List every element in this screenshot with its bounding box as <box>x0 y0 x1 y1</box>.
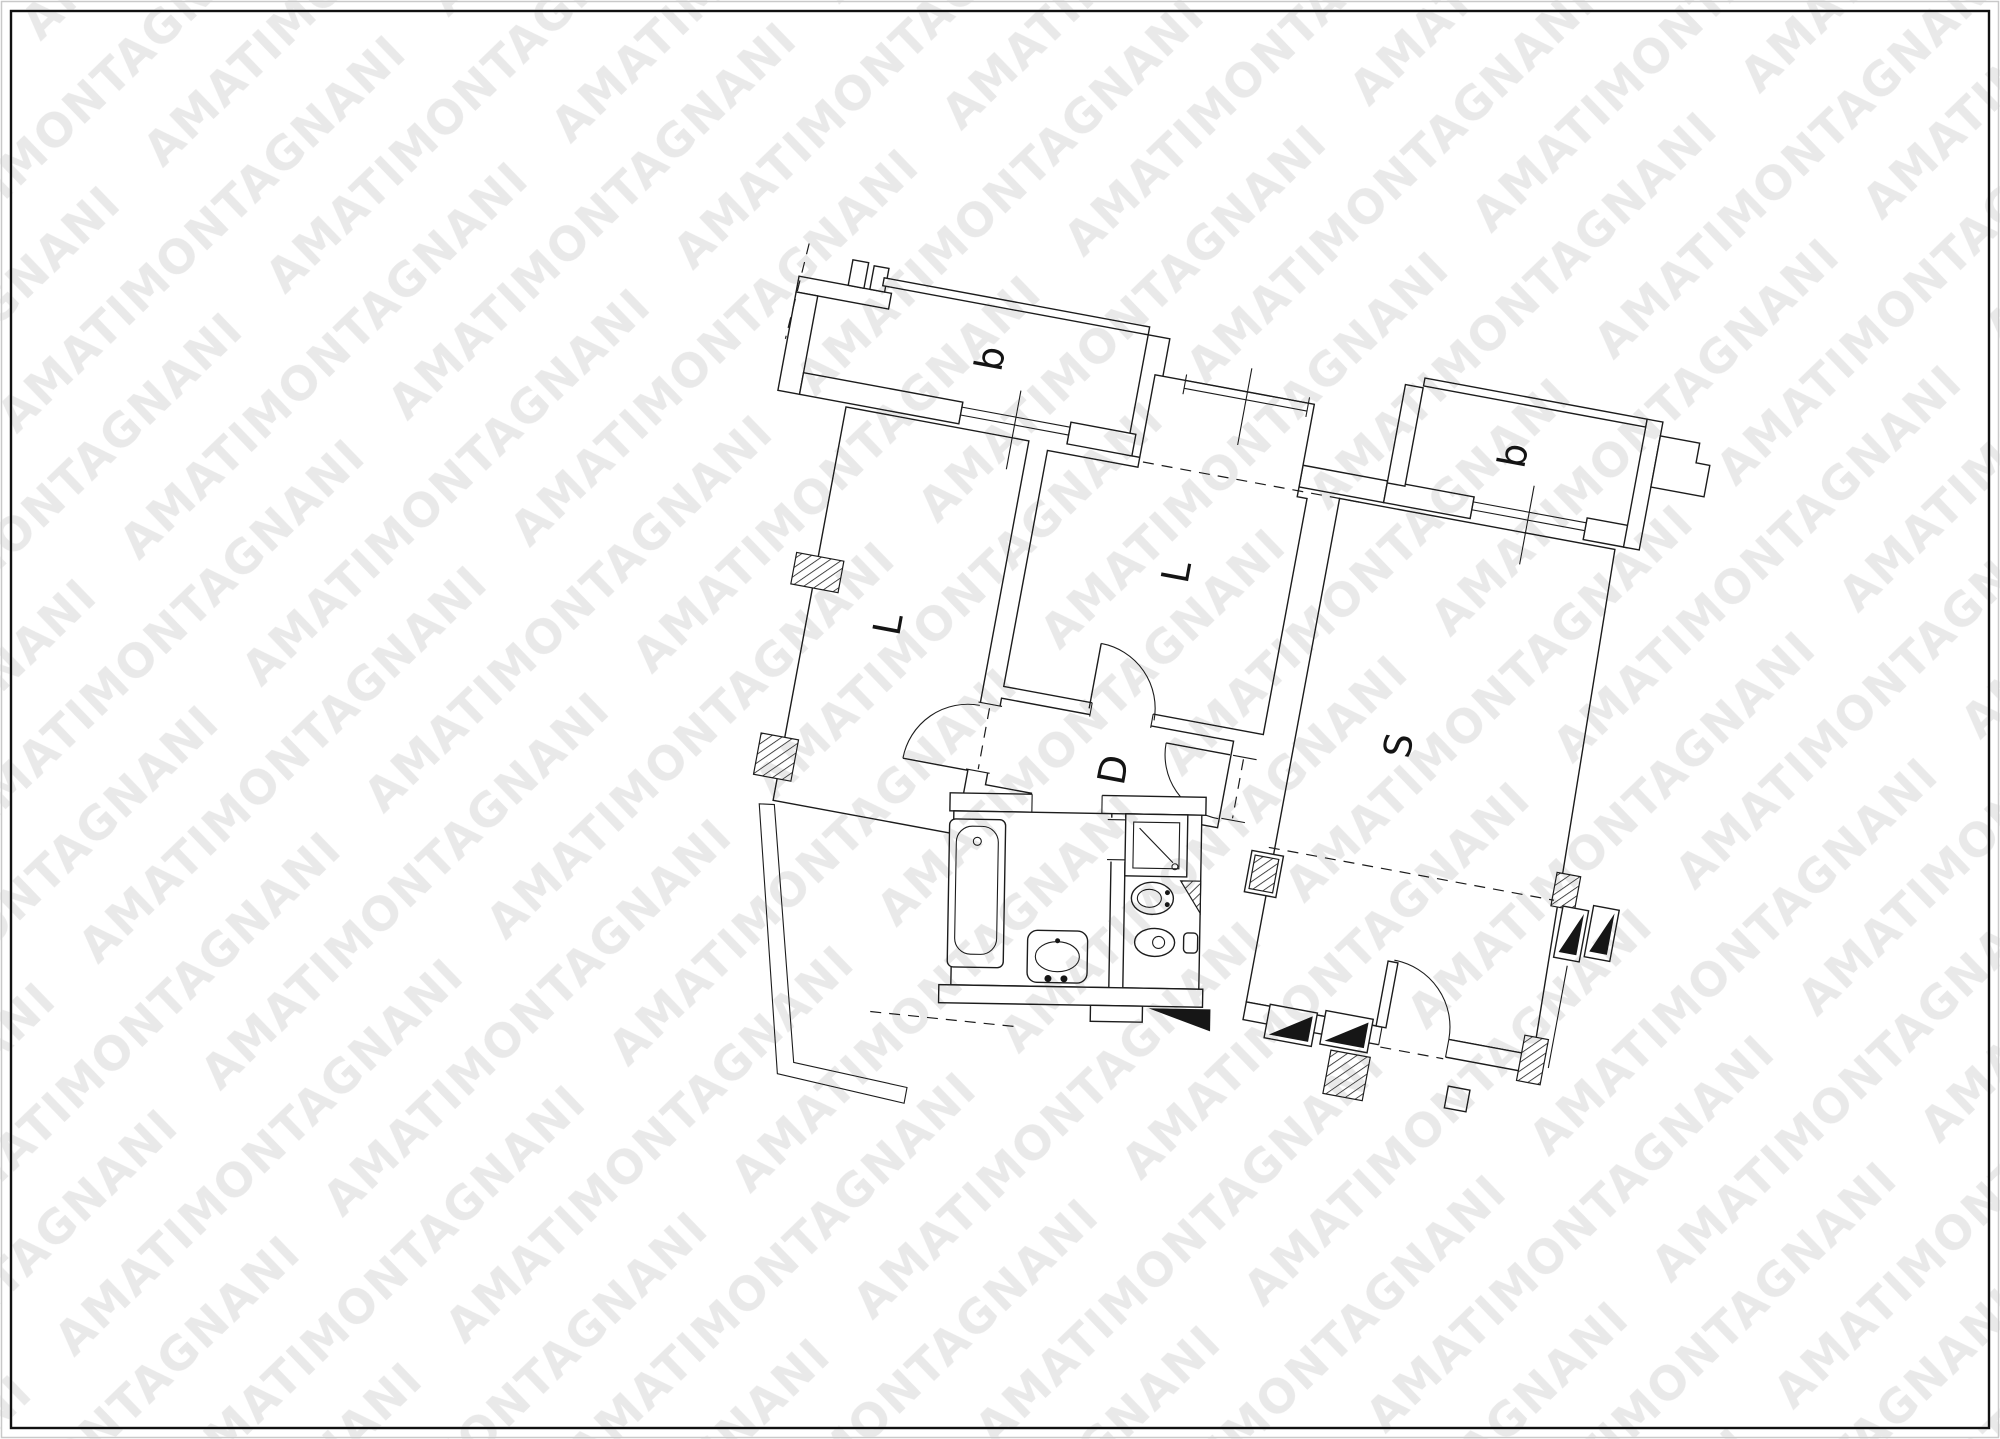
floorplan-canvas: AMATIMONTAGNANI AMATIMONTAGNANI AMATIMON… <box>0 0 2000 1439</box>
scanned-floorplan-page: AMATIMONTAGNANI AMATIMONTAGNANI AMATIMON… <box>0 0 2000 1439</box>
watermark-layer <box>0 0 2000 1439</box>
